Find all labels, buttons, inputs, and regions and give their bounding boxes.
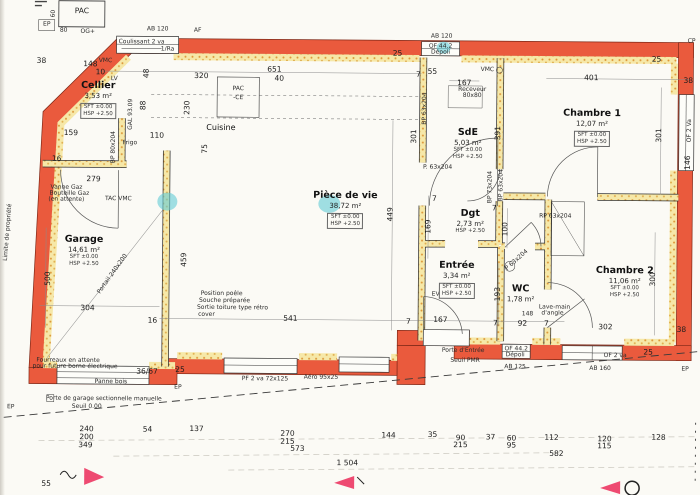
door-arcs (59, 135, 598, 335)
plan-label: BP 63x204 (498, 169, 504, 201)
plan-label: OF 2 Va (687, 119, 693, 142)
plan-label: TAC VMC (105, 196, 132, 202)
plan-label: 148 (522, 311, 533, 317)
room-levels: HSP +2.50 (455, 228, 485, 235)
room-levels: SFT ±0.00HSP +2.50 (80, 103, 116, 119)
plan-label: 144 (381, 432, 395, 440)
plan-label: Dépoli (506, 352, 525, 358)
plan-label: 16 (52, 155, 62, 163)
plan-label: Seuil 0.00 (72, 404, 102, 410)
room-label: Entrée3,34 m²SFT ±0.00HSP +2.50 (439, 260, 475, 299)
plan-label: 10 (96, 68, 106, 76)
plan-label: 1 504 (337, 459, 359, 467)
room-levels: SFT ±0.00HSP +2.50 (439, 283, 475, 299)
plan-label: EP (681, 367, 688, 373)
plan-label: 95 (507, 441, 517, 449)
plan-label: 36/67 (136, 368, 158, 376)
plan-label: 55 (428, 68, 438, 76)
room-label: Dgt2,73 m²HSP +2.50 (455, 208, 485, 235)
plan-label: OF 2 va (604, 353, 627, 359)
plan-label: Panne bois (95, 379, 128, 385)
plan-label: AB 120 (147, 26, 169, 32)
plan-label: 304 (80, 304, 94, 312)
room-levels: SFT ±0.00HSP +2.50 (327, 213, 363, 229)
plan-label: 279 (86, 175, 100, 183)
plan-label: 230 (183, 101, 191, 115)
room-label: Chambre 211,06 m²SFT ±0.00HSP +2.50 (596, 265, 654, 299)
room-area: 5,03 m² (453, 139, 483, 147)
plan-label: 7 (406, 318, 411, 326)
plan-label: AB 160 (589, 366, 611, 372)
plan-label: 169 (424, 219, 432, 233)
room-name: Dgt (455, 208, 485, 219)
room-levels: SFT ±0.00HSP +2.50 (453, 147, 483, 161)
plan-label: 80 (60, 28, 68, 34)
plan-label: 1/Ra (161, 47, 175, 53)
highlighter-dots (157, 39, 450, 213)
room-label: Garage14,61 m²SFT ±0.00HSP +2.50 (65, 234, 104, 268)
plan-label: P. 63x204 (423, 165, 452, 171)
plan-label: 25 (175, 366, 185, 374)
room-levels: SFT ±0.00HSP +2.50 (596, 285, 654, 299)
plan-label: 92 (518, 320, 528, 328)
plan-label: 391 (494, 126, 502, 140)
plan-label: 25 (643, 349, 653, 357)
room-level-line: HSP +2.50 (596, 292, 654, 299)
room-area: 3,53 m² (80, 92, 116, 100)
plan-label: 128 (651, 434, 665, 442)
plan-label: 320 (194, 72, 208, 80)
plan-label: Porte d'Entrée (442, 348, 485, 354)
room-label: Cuisine (206, 123, 235, 132)
room-name: Entrée (439, 260, 475, 271)
plan-label: 25 (652, 56, 662, 64)
plan-label: 112 (544, 434, 558, 442)
plan-label: pour future borne électrique (33, 364, 118, 371)
room-label: Pièce de vie38,72 m²SFT ±0.00HSP +2.50 (313, 190, 378, 230)
plan-label: 16 (148, 317, 158, 325)
plan-label: 500 (44, 271, 52, 285)
room-name: Chambre 2 (596, 265, 654, 276)
plan-label: Dépoli (431, 50, 450, 56)
plan-label: d'angle (541, 311, 563, 317)
plan-label: RP 63x204 (539, 213, 571, 219)
plan-label: 80x80 (463, 93, 482, 99)
plan-label: 25 (393, 50, 403, 58)
plan-label: PF 2 va 72x125 (242, 376, 289, 382)
scan-artifacts (35, 2, 47, 6)
room-level-line: HSP +2.50 (442, 291, 472, 298)
plan-label: Seuil PMR (450, 358, 480, 364)
plan-label: EP (7, 404, 14, 410)
room-label: Chambre 112,07 m²SFT ±0.00HSP +2.50 (563, 108, 621, 147)
room-label: SdE5,03 m²SFT ±0.00HSP +2.50 (453, 127, 483, 161)
plan-label: 301 (655, 128, 663, 142)
plan-label: AB 125 (504, 364, 526, 370)
plan-label: 7 (492, 204, 497, 212)
plan-label: 88 (139, 101, 147, 111)
room-name: Cellier (80, 80, 116, 91)
plan-label: Porte de garage sectionnelle manuelle (46, 396, 162, 403)
room-label: WC1,78 m² (507, 283, 535, 303)
room-level-line: HSP +2.50 (83, 111, 113, 118)
plan-label: 193 (494, 287, 502, 301)
room-area: 12,07 m² (563, 120, 621, 128)
plan-label: 7 (493, 319, 498, 327)
plan-label: 573 (290, 445, 304, 453)
room-name: Garage (65, 234, 104, 245)
plan-label: 459 (180, 253, 188, 267)
plan-label: 7 (432, 195, 437, 203)
plan-label: PAC (75, 7, 89, 15)
room-name: SdE (453, 127, 483, 138)
plan-label: 55 (41, 480, 51, 488)
plan-label: PAC (232, 86, 243, 92)
room-label: Cellier3,53 m²SFT ±0.00HSP +2.50 (80, 80, 116, 119)
plan-label: 38 (37, 57, 47, 65)
scan-edge-shadow (0, 0, 5, 495)
plan-label: 7 (416, 71, 421, 79)
plan-label: 401 (584, 74, 598, 82)
plan-label: BP 73x204 (487, 171, 493, 203)
plan-label: 35 (428, 431, 438, 439)
plan-label: BP 63x204 (422, 92, 428, 124)
plan-label: BP 80x204 (111, 131, 117, 163)
plan-label: 75 (201, 144, 209, 154)
room-area: 2,73 m² (455, 220, 485, 228)
plan-label: 110 (150, 132, 164, 140)
room-level-line: HSP +2.50 (577, 139, 607, 146)
plan-label: 37 (486, 433, 496, 441)
plan-label: 60 (51, 10, 57, 18)
room-area: 1,78 m² (507, 295, 534, 303)
plan-canvas: PAC6080OG+EPAB 120Coulissant 2 va1/RaAF3… (0, 0, 700, 495)
plan-label: OG+ (80, 29, 94, 35)
plan-label: 541 (283, 315, 297, 323)
plan-label: Frigo (122, 140, 137, 146)
plan-label: EP (174, 385, 181, 391)
plan-label: 215 (453, 441, 467, 449)
plan-label: 146 (684, 155, 692, 169)
plan-label: VMC (99, 58, 113, 64)
plan-label: 159 (64, 129, 78, 137)
plan-label: 7 (544, 320, 549, 328)
plan-label: AF (194, 28, 202, 34)
room-area: 3,34 m² (439, 272, 475, 280)
plan-label: GAL 93.09 (128, 99, 134, 130)
plan-label: 301 (410, 129, 418, 143)
plan-label: Aéro 95x25 (304, 375, 338, 381)
room-level-line: HSP +2.50 (453, 154, 483, 161)
plan-label: 48 (143, 69, 151, 79)
plan-label: 137 (189, 425, 203, 433)
plan-label: 40 (275, 75, 285, 83)
plan-label: 100 (501, 222, 509, 236)
plan-label: 38 (684, 77, 694, 85)
room-levels: SFT ±0.00HSP +2.50 (65, 254, 104, 268)
plan-label: 38 (677, 326, 687, 334)
plan-label: -CE (233, 95, 243, 101)
plan-label: VMC (481, 67, 495, 73)
room-level-line: HSP +2.50 (65, 261, 104, 268)
plan-label: 167 (433, 316, 447, 324)
plan-label: CP (688, 39, 696, 45)
room-name: Chambre 1 (563, 108, 621, 119)
room-level-line: HSP +2.50 (455, 228, 485, 235)
plan-label: 582 (549, 450, 563, 458)
plan-label: 115 (597, 442, 611, 450)
plan-label: 651 (267, 66, 281, 74)
plan-label: 54 (143, 426, 153, 434)
plan-label: 349 (78, 441, 92, 449)
plan-label: 302 (598, 323, 612, 331)
plan-label: Coulissant 2 va (119, 39, 165, 45)
room-name: Cuisine (206, 123, 235, 132)
plan-label: EP (43, 22, 50, 28)
plan-label: cover (198, 312, 215, 318)
plan-label: AB 120 (431, 34, 453, 40)
room-name: WC (507, 283, 535, 294)
room-area: 38,72 m² (313, 202, 378, 211)
room-levels: SFT ±0.00HSP +2.50 (574, 131, 610, 147)
pink-marker-marks (60, 468, 639, 495)
room-level-line: HSP +2.50 (330, 221, 360, 228)
room-name: Pièce de vie (313, 190, 378, 202)
scanned-floor-plan: PAC6080OG+EPAB 120Coulissant 2 va1/RaAF3… (0, 0, 700, 495)
plan-label: 449 (386, 207, 394, 221)
plan-label: (en attente) (48, 197, 84, 203)
